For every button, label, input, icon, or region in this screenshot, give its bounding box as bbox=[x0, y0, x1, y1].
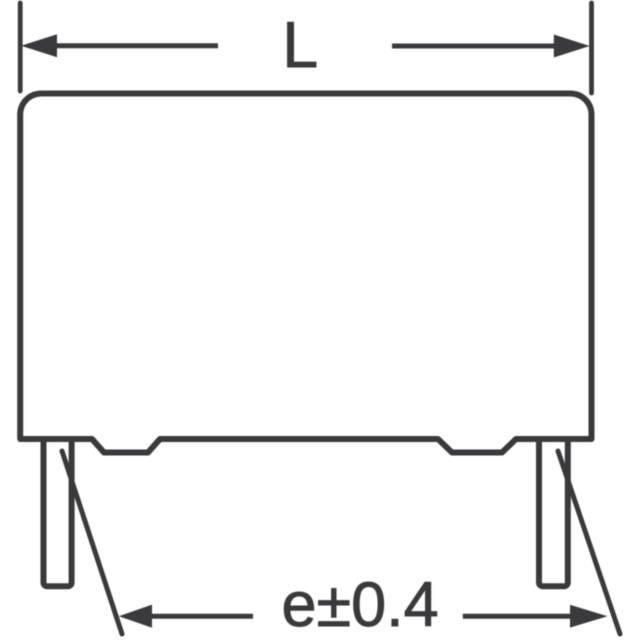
svg-text:e±0.4: e±0.4 bbox=[282, 570, 439, 640]
svg-text:L: L bbox=[282, 9, 318, 81]
